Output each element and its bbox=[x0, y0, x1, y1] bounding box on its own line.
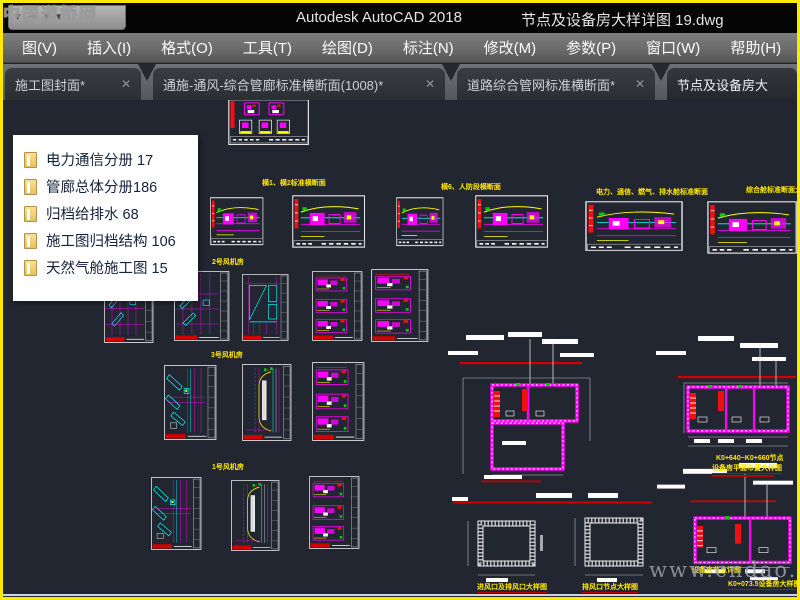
cad-caption: 电力、通信、燃气、排水舱标准断面 bbox=[596, 189, 708, 196]
cad-caption: 横1、横2标准横断面 bbox=[262, 180, 326, 187]
cad-caption: 3号风机房 bbox=[211, 352, 243, 359]
cad-sheet-t2c bbox=[151, 477, 202, 550]
cad-caption: 2号风机房 bbox=[212, 259, 244, 266]
cad-caption: K0+073.5设备房大样图 bbox=[728, 581, 797, 590]
menu-draw[interactable]: 绘图(D) bbox=[307, 33, 388, 62]
menu-bar: 图(V) 插入(I) 格式(O) 工具(T) 绘图(D) 标注(N) 修改(M)… bbox=[3, 33, 797, 63]
app-title: Autodesk AutoCAD 2018 bbox=[296, 9, 462, 26]
cad-caption: 进风口及排风口大样图 bbox=[477, 584, 547, 593]
cad-sheet-t3 bbox=[242, 364, 292, 441]
cad-sheet-sec bbox=[446, 491, 578, 591]
cad-sheet-t3 bbox=[231, 480, 280, 551]
cad-sheet-t1 bbox=[396, 197, 444, 250]
tab-divider bbox=[442, 64, 460, 81]
cad-sheet-t2c bbox=[164, 365, 217, 440]
close-icon[interactable]: ✕ bbox=[411, 77, 435, 91]
cad-sheet-t4 bbox=[371, 269, 429, 342]
tab-road-pipe-section[interactable]: 道路综合管网标准横断面* ✕ bbox=[457, 68, 655, 100]
menu-format[interactable]: 格式(O) bbox=[146, 33, 228, 62]
cad-caption: 横6、人防段横断面 bbox=[441, 184, 501, 191]
tab-divider bbox=[652, 64, 670, 81]
menu-help[interactable]: 帮助(H) bbox=[715, 33, 796, 62]
file-tab-bar: 施工图封面* ✕ 通施-通风-综合管廊标准横断面(1008)* ✕ 道路综合管网… bbox=[3, 64, 797, 100]
menu-dimension[interactable]: 标注(N) bbox=[388, 33, 469, 62]
menu-modify[interactable]: 修改(M) bbox=[469, 33, 552, 62]
tab-cover-sheet[interactable]: 施工图封面* ✕ bbox=[5, 68, 141, 100]
close-icon[interactable]: ✕ bbox=[107, 77, 131, 91]
list-item[interactable]: 施工图归档结构 106 bbox=[24, 227, 198, 254]
tab-node-equipment-detail[interactable]: 节点及设备房大 bbox=[667, 68, 797, 100]
cad-sheet-pl1 bbox=[446, 331, 596, 483]
drawing-canvas[interactable]: www.cndao.com 电力通信分册 17 管廊总体分册186 归档给排水 … bbox=[3, 100, 797, 600]
cad-sheet-t1 bbox=[707, 201, 797, 258]
watermark-bottom: www.cndao.com bbox=[649, 558, 797, 582]
cad-caption: 1号风机房 bbox=[212, 464, 244, 471]
tab-ventilation-section[interactable]: 通施-通风-综合管廊标准横断面(1008)* ✕ bbox=[153, 68, 445, 100]
cad-sheet-t1 bbox=[585, 201, 684, 255]
list-item[interactable]: 电力通信分册 17 bbox=[24, 146, 198, 173]
cad-sheet-t5 bbox=[228, 100, 310, 146]
menu-tools[interactable]: 工具(T) bbox=[228, 33, 307, 62]
application-window: 中国道桥网 ▾ ➔ ▾ ▾ Autodesk AutoCAD 2018 节点及设… bbox=[0, 0, 800, 600]
cad-sheet-t4 bbox=[312, 362, 365, 441]
cad-sheet-t1 bbox=[475, 195, 549, 252]
cad-caption: K0+640~K0+660节点 bbox=[716, 455, 784, 462]
tab-divider bbox=[138, 64, 156, 81]
cad-sheet-t1 bbox=[292, 195, 366, 252]
folder-icon bbox=[24, 179, 37, 195]
list-item[interactable]: 天然气舱施工图 15 bbox=[24, 254, 198, 281]
cad-sheet-t1 bbox=[210, 197, 264, 249]
folder-icon bbox=[24, 206, 37, 222]
document-title: 节点及设备房大样详图 19.dwg bbox=[521, 9, 724, 30]
cad-caption: 排风口节点大样图 bbox=[582, 584, 638, 593]
folder-icon bbox=[24, 233, 37, 249]
cad-sheet-t2b bbox=[242, 274, 289, 341]
menu-window[interactable]: 窗口(W) bbox=[631, 33, 715, 62]
folder-icon bbox=[24, 260, 37, 276]
watermark-topleft: 中国道桥网 bbox=[3, 0, 98, 25]
list-item[interactable]: 归档给排水 68 bbox=[24, 200, 198, 227]
folder-list-popup: 电力通信分册 17 管廊总体分册186 归档给排水 68 施工图归档结构 106… bbox=[13, 135, 198, 301]
close-icon[interactable]: ✕ bbox=[621, 77, 645, 91]
menu-parametric[interactable]: 参数(P) bbox=[551, 33, 631, 62]
menu-insert[interactable]: 插入(I) bbox=[72, 33, 146, 62]
cad-sheet-t4 bbox=[312, 271, 363, 341]
title-bar: 中国道桥网 ▾ ➔ ▾ ▾ Autodesk AutoCAD 2018 节点及设… bbox=[3, 3, 797, 33]
cad-caption: 设备房平面布置大样图 bbox=[712, 465, 782, 474]
folder-icon bbox=[24, 152, 37, 168]
canvas-bottom-edge bbox=[3, 594, 797, 596]
list-item[interactable]: 管廊总体分册186 bbox=[24, 173, 198, 200]
menu-view[interactable]: 图(V) bbox=[7, 33, 72, 62]
cad-caption: 综合舱标准断面大样图 bbox=[746, 187, 797, 194]
cad-sheet-t4 bbox=[309, 476, 360, 549]
